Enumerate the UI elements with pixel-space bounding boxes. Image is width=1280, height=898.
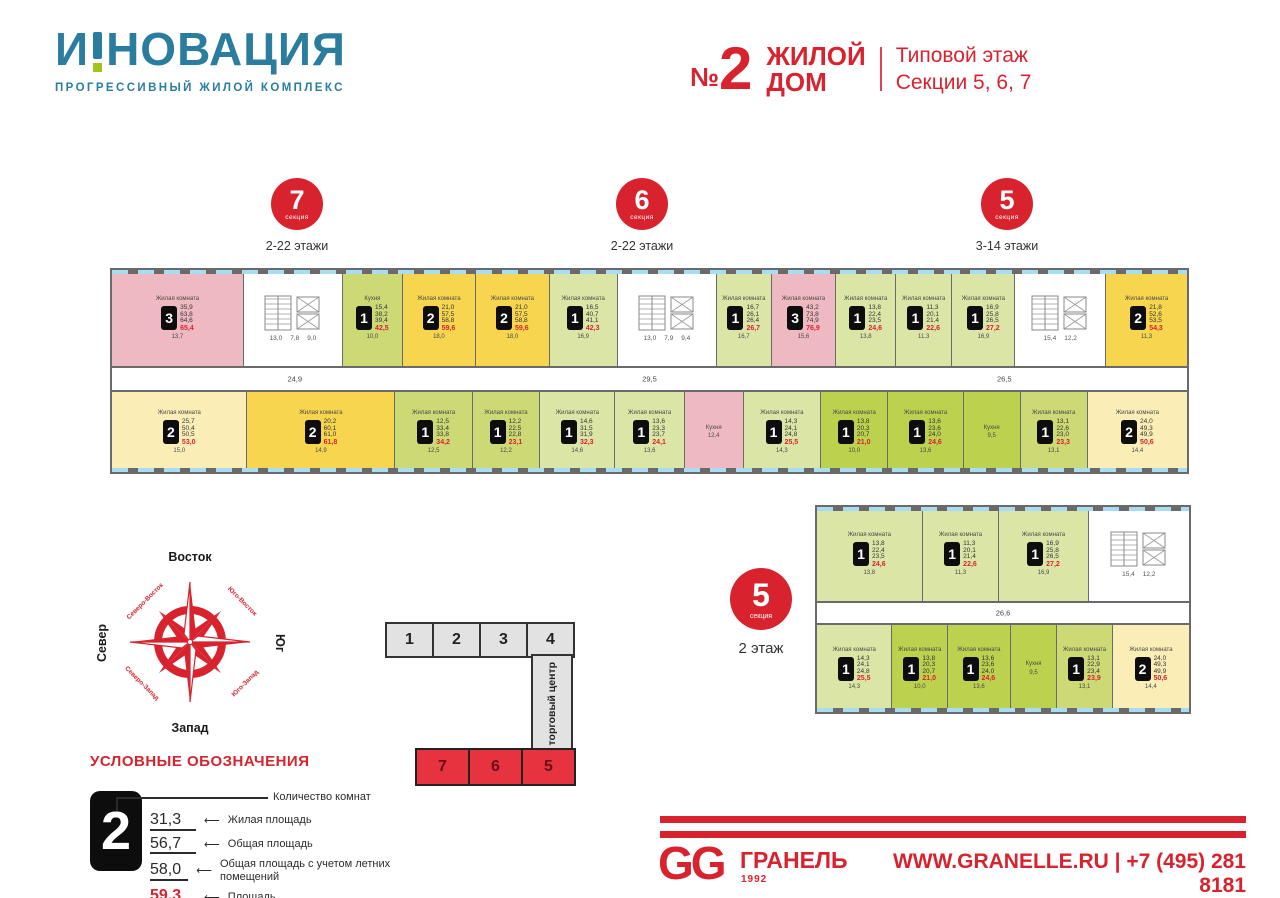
apartment-1-room: Жилая комната113,822,423,524,613,8 (836, 270, 896, 366)
apartment-areas: 25,750,450,553,0 (182, 419, 196, 446)
legend-bracket-line (116, 797, 268, 811)
apartment-total-area: 26,7 (746, 325, 760, 332)
apartment-total-area: 25,5 (785, 439, 799, 446)
plan-corridor: 24,929,526,5 (112, 366, 1187, 392)
apartment-1-room: Жилая комната113,820,320,721,010,0 (892, 625, 948, 712)
apartment-areas: 43,273,874,976,9 (806, 305, 820, 332)
room-dimension: 12,5 (428, 448, 440, 454)
apartment-total-area: 65,4 (180, 325, 194, 332)
room-dimension: 13,1 (1048, 448, 1060, 454)
room-dimension: 16,9 (577, 334, 589, 340)
legend-label: Жилая площадь (228, 814, 312, 827)
apartment-1-room: Жилая комната116,726,126,426,716,7 (717, 270, 772, 366)
apartment-2-room: Жилая комната224,049,349,950,614,4 (1113, 625, 1189, 712)
apartment-total-area: 23,1 (509, 439, 523, 446)
innovation-logo: И НОВАЦИЯ ПРОГРЕССИВНЫЙ ЖИЛОЙ КОМПЛЕКС (55, 26, 346, 94)
apartment-1-room: Жилая комната114,324,124,825,514,3 (744, 392, 822, 472)
room-count-badge: 1 (1068, 657, 1084, 681)
apartment-part: Кухня12,4 (685, 392, 744, 472)
arrow-icon: ⟵ (196, 864, 212, 877)
room-label: Кухня (364, 296, 380, 303)
room-label: Жилая комната (833, 647, 876, 654)
schematic-section-1: 1 (385, 622, 434, 658)
room-dimension: 11,3 (955, 570, 966, 576)
section5-floor2-plan: Жилая комната113,822,423,524,613,8Жилая … (815, 505, 1191, 714)
room-dimension: 16,9 (978, 334, 990, 340)
room-count-badge: 1 (967, 306, 983, 330)
room-count-badge: 2 (1121, 420, 1137, 444)
apartment-1-room: Жилая комната116,540,741,142,316,9 (550, 270, 618, 366)
floor-label: 2 этаж (728, 640, 794, 657)
apartment-part: Кухня9,5 (1011, 625, 1057, 712)
room-label: Жилая комната (556, 410, 599, 417)
room-label: Жилая комната (1032, 410, 1075, 417)
apartment-1-room: Жилая комната113,822,423,524,613,8 (817, 507, 923, 601)
footer-stripe-2 (660, 831, 1246, 838)
apartment-total-area: 34,2 (436, 439, 450, 446)
apartment-total-area: 23,9 (1087, 675, 1101, 682)
apartment-total-area: 24,6 (868, 325, 882, 332)
apartment-total-area: 76,9 (806, 325, 820, 332)
room-dimension: 14,3 (776, 448, 788, 454)
apartment-total-area: 22,6 (926, 325, 940, 332)
room-label: Жилая комната (1022, 532, 1065, 539)
apartment-2-room: Жилая комната221,057,558,859,618,0 (476, 270, 549, 366)
granel-brand: ГРАНЕЛЬ (740, 849, 848, 872)
room-label: Жилая комната (833, 410, 876, 417)
room-count-badge: 1 (849, 306, 865, 330)
room-dimension: 12,2 (500, 448, 512, 454)
corridor-dimension: 24,9 (287, 375, 302, 384)
section-word: секция (750, 613, 772, 620)
apartment-total-area: 42,5 (375, 325, 389, 332)
apartment-areas: 13,122,623,023,3 (1056, 419, 1070, 446)
granel-logo: GG (658, 840, 724, 886)
stairs-elevator-icon (1110, 531, 1168, 567)
apartment-total-area: 50,6 (1154, 675, 1168, 682)
stair-core: 15,412,2 (1089, 507, 1189, 601)
section-number: 5 (752, 579, 770, 611)
apartment-1-room: Жилая комната113,122,623,023,313,1 (1021, 392, 1088, 472)
apartment-total-area: 61,8 (324, 439, 338, 446)
apartment-1-room: Жилая комната113,820,320,721,010,0 (821, 392, 888, 472)
room-label: Жилая комната (898, 647, 941, 654)
room-label: Жилая комната (1125, 296, 1168, 303)
contacts-text: WWW.GRANELLE.RU | +7 (495) 281 8181 (860, 850, 1246, 898)
mall-label: торговый центр (546, 662, 558, 745)
room-label: Жилая комната (156, 296, 199, 303)
windows-strip (817, 507, 1189, 511)
room-dimension: 18,0 (433, 334, 445, 340)
apartment-areas: 35,963,864,665,4 (180, 305, 194, 332)
building-label-2: ДОМ (766, 69, 865, 96)
apartment-total-area: 27,2 (1046, 561, 1060, 568)
schematic-section-4: 4 (526, 622, 575, 658)
section-number: 5 (999, 187, 1014, 214)
section-number: 6 (634, 187, 649, 214)
room-label: Жилая комната (1129, 647, 1172, 654)
apartment-total-area: 53,0 (182, 439, 196, 446)
apartment-areas: 13,623,624,024,6 (982, 656, 996, 683)
apartment-total-area: 32,3 (580, 439, 594, 446)
section-floors: 2-22 этажи (242, 239, 352, 253)
room-label: Жилая комната (412, 410, 455, 417)
logo-text-left: И (55, 26, 89, 72)
arrow-icon: ⟵ (204, 838, 220, 851)
legend-row: 59,3⟵Площадь (150, 887, 410, 898)
room-count-badge: 1 (838, 657, 854, 681)
apartment-total-area: 59,6 (442, 325, 456, 332)
mall-block: торговый центр (531, 654, 573, 754)
room-count-badge: 1 (944, 542, 960, 566)
apartment-areas: 13,822,423,524,6 (868, 305, 882, 332)
compass-north-label: Север (95, 623, 109, 661)
room-count-badge: 1 (1037, 420, 1053, 444)
footer-stripe-1 (660, 816, 1246, 823)
windows-strip (112, 468, 1187, 472)
room-dimension: 13,7 (172, 334, 184, 340)
room-count-badge: 1 (490, 420, 506, 444)
room-dimension: 10,0 (848, 448, 860, 454)
apartment-areas: 12,222,522,823,1 (509, 419, 523, 446)
apartment-areas: 16,925,826,527,2 (986, 305, 1000, 332)
typical-floor-plan: Жилая комната335,963,864,665,413,713,07,… (110, 268, 1189, 474)
apartment-areas: 14,324,124,825,5 (857, 656, 871, 683)
corridor-dimension: 26,6 (996, 609, 1011, 618)
apartment-areas: 16,540,741,142,3 (586, 305, 600, 332)
floor2-top-row: Жилая комната113,822,423,524,613,8Жилая … (817, 507, 1189, 601)
legend-rooms-label: Количество комнат (273, 791, 371, 803)
apartment-1-room: Жилая комната116,925,826,527,216,9 (952, 270, 1015, 366)
room-label: Жилая комната (844, 296, 887, 303)
room-label: Жилая комната (491, 296, 534, 303)
compass-rose: Восток Запад Север Юг Северо-Восток Юго-… (95, 550, 285, 735)
apartment-total-area: 23,3 (1056, 439, 1070, 446)
granel-year: 1992 (741, 874, 767, 885)
apartment-1-room: Жилая комната114,631,531,932,314,6 (540, 392, 615, 472)
room-label: Жилая комната (722, 296, 765, 303)
legend: УСЛОВНЫЕ ОБОЗНАЧЕНИЯ 2 Количество комнат… (90, 753, 410, 770)
legend-rows: 31,3⟵Жилая площадь56,7⟵Общая площадь58,0… (150, 811, 410, 898)
apartment-1-room: Жилая комната111,320,121,422,611,3 (896, 270, 952, 366)
legend-row: 58,0⟵Общая площадь с учетом летних помещ… (150, 858, 410, 883)
stairs-elevator-icon (1031, 295, 1089, 331)
apartment-areas: 14,324,124,825,5 (785, 419, 799, 446)
room-count-badge: 2 (1130, 306, 1146, 330)
room-label: Жилая комната (902, 296, 945, 303)
room-count-badge: 2 (496, 306, 512, 330)
room-label: Жилая комната (299, 410, 342, 417)
section-word: секция (630, 215, 654, 222)
room-label: Жилая комната (628, 410, 671, 417)
apartment-total-area: 54,3 (1149, 325, 1163, 332)
title-divider (880, 47, 882, 91)
room-label: Жилая комната (1116, 410, 1159, 417)
legend-label: Площадь (228, 891, 276, 898)
room-label: Жилая комната (848, 532, 891, 539)
apartment-1-room: Жилая комната113,623,624,024,613,6 (888, 392, 963, 472)
room-label: Кухня (1025, 661, 1041, 668)
apartment-areas: 14,631,531,932,3 (580, 419, 594, 446)
room-dimension: 9,5 (1029, 670, 1037, 676)
room-dimension: 14,3 (848, 684, 860, 690)
apartment-areas: 11,320,121,422,6 (926, 305, 940, 332)
apartment-total-area: 50,6 (1140, 439, 1154, 446)
room-count-badge: 3 (161, 306, 177, 330)
schematic-red-row: 765 (415, 748, 576, 786)
room-count-badge: 1 (853, 542, 869, 566)
stair-core: 13,07,89,0 (244, 270, 343, 366)
room-label: Жилая комната (957, 647, 1000, 654)
stair-core: 15,412,2 (1015, 270, 1106, 366)
apartment-3-room: Жилая комната335,963,864,665,413,7 (112, 270, 244, 366)
legend-value: 31,3 (150, 811, 196, 831)
room-label: Жилая комната (962, 296, 1005, 303)
room-count-badge: 1 (561, 420, 577, 444)
room-count-badge: 1 (356, 306, 372, 330)
floor2-corridor: 26,6 (817, 601, 1189, 625)
schematic-section-3: 3 (479, 622, 528, 658)
legend-value: 59,3 (150, 887, 196, 898)
room-dimension: 9,5 (987, 433, 995, 439)
room-label: Жилая комната (760, 410, 803, 417)
schematic-section-5: 5 (521, 748, 576, 786)
apartment-2-room: Жилая комната220,260,161,061,814,9 (247, 392, 395, 472)
room-dimension: 14,4 (1132, 448, 1144, 454)
apartment-areas: 12,533,433,834,2 (436, 419, 450, 446)
room-dimension: 12,4 (708, 433, 720, 439)
room-count-badge: 1 (766, 420, 782, 444)
room-dimension: 11,3 (1141, 334, 1152, 340)
stair-core: 13,07,99,4 (618, 270, 717, 366)
room-count-badge: 1 (838, 420, 854, 444)
compass-south-label: Юг (273, 633, 287, 651)
schematic-section-2: 2 (432, 622, 481, 658)
room-count-badge: 1 (567, 306, 583, 330)
apartment-areas: 16,726,126,426,7 (746, 305, 760, 332)
apartment-2-room: Жилая комната225,750,450,553,015,0 (112, 392, 247, 472)
apartment-1-room: Жилая комната112,222,522,823,112,2 (473, 392, 540, 472)
apartment-1-room: Жилая комната112,533,433,834,212,5 (395, 392, 473, 472)
room-count-badge: 2 (1135, 657, 1151, 681)
apartment-areas: 21,852,653,554,3 (1149, 305, 1163, 332)
section5-floor2-badge: 5секция 2 этаж (728, 568, 794, 657)
sections-label: Секции 5, 6, 7 (896, 69, 1032, 96)
room-dimension: 14,9 (315, 448, 327, 454)
section-badge-5: 5секция 3-14 этажи (952, 178, 1062, 253)
legend-title: УСЛОВНЫЕ ОБОЗНАЧЕНИЯ (90, 753, 410, 770)
arrow-icon: ⟵ (204, 891, 220, 898)
section-word: секция (285, 215, 309, 222)
schematic-section-7: 7 (415, 748, 470, 786)
apartment-total-area: 24,6 (928, 439, 942, 446)
apartment-total-area: 21,0 (922, 675, 936, 682)
windows-strip (817, 708, 1189, 712)
room-label: Жилая комната (484, 410, 527, 417)
section-badge-6: 6секция 2-22 этажи (587, 178, 697, 253)
apartment-1-room: Кухня115,438,239,442,510,0 (343, 270, 403, 366)
apartment-total-area: 25,5 (857, 675, 871, 682)
compass-east-label: Восток (168, 550, 211, 564)
legend-row: 31,3⟵Жилая площадь (150, 811, 410, 831)
room-label: Кухня (706, 425, 722, 432)
floor-type-label: Типовой этаж (896, 42, 1032, 69)
room-count-badge: 3 (787, 306, 803, 330)
apartment-1-room: Жилая комната114,324,124,825,514,3 (817, 625, 892, 712)
logo-text-right: НОВАЦИЯ (106, 26, 346, 72)
apartment-2-room: Жилая комната221,852,653,554,311,3 (1106, 270, 1187, 366)
building-number: 2 (719, 45, 752, 93)
room-dimension: 13,6 (920, 448, 932, 454)
room-label: Жилая комната (417, 296, 460, 303)
room-count-badge: 1 (907, 306, 923, 330)
apartment-part: Кухня9,5 (964, 392, 1021, 472)
apartment-areas: 13,623,323,724,1 (652, 419, 666, 446)
room-count-badge: 1 (909, 420, 925, 444)
room-dimension: 18,0 (506, 334, 518, 340)
apartment-3-room: Жилая комната343,273,874,976,915,6 (772, 270, 837, 366)
apartment-total-area: 42,3 (586, 325, 600, 332)
room-dimension: 13,1 (1079, 684, 1091, 690)
room-dimension: 15,6 (798, 334, 810, 340)
apartment-areas: 21,057,558,859,6 (515, 305, 529, 332)
room-dimension: 14,6 (571, 448, 583, 454)
building-schematic: 1234 торговый центр 765 (385, 622, 580, 790)
schematic-section-6: 6 (468, 748, 523, 786)
room-count-badge: 2 (305, 420, 321, 444)
section-floors: 3-14 этажи (952, 239, 1062, 253)
room-label: Кухня (984, 425, 1000, 432)
apartment-areas: 13,623,624,024,6 (928, 419, 942, 446)
legend-value: 56,7 (150, 835, 196, 855)
number-sign: № (690, 66, 719, 93)
room-count-badge: 1 (963, 657, 979, 681)
room-count-badge: 1 (417, 420, 433, 444)
apartment-total-area: 21,0 (857, 439, 871, 446)
room-dimension: 15,0 (173, 448, 185, 454)
room-dimension: 13,6 (644, 448, 656, 454)
room-count-badge: 1 (727, 306, 743, 330)
floor2-bottom-row: Жилая комната114,324,124,825,514,3Жилая … (817, 625, 1189, 712)
room-count-badge: 1 (1027, 542, 1043, 566)
apartment-2-room: Жилая комната221,057,558,859,618,0 (403, 270, 476, 366)
apartment-total-area: 27,2 (986, 325, 1000, 332)
apartment-areas: 20,260,161,061,8 (324, 419, 338, 446)
room-label: Жилая комната (939, 532, 982, 539)
apartment-areas: 13,820,320,721,0 (922, 656, 936, 683)
apartment-areas: 11,320,121,422,6 (963, 541, 977, 568)
apartment-2-room: Жилая комната224,049,349,950,614,4 (1088, 392, 1187, 472)
apartment-areas: 24,049,349,950,6 (1140, 419, 1154, 446)
apartment-total-area: 22,6 (963, 561, 977, 568)
room-label: Жилая комната (562, 296, 605, 303)
room-dimension: 13,6 (973, 684, 985, 690)
room-count-badge: 2 (423, 306, 439, 330)
apartment-areas: 24,049,349,950,6 (1154, 656, 1168, 683)
room-count-badge: 2 (163, 420, 179, 444)
room-dimension: 13,8 (863, 570, 875, 576)
plan-bottom-row: Жилая комната225,750,450,553,015,0Жилая … (112, 392, 1187, 472)
apartment-areas: 15,438,239,442,5 (375, 305, 389, 332)
apartment-1-room: Жилая комната113,122,923,423,913,1 (1057, 625, 1113, 712)
corridor-dimension: 26,5 (997, 375, 1012, 384)
section-floors: 2-22 этажи (587, 239, 697, 253)
room-label: Жилая комната (158, 410, 201, 417)
apartment-1-room: Жилая комната113,623,323,724,113,6 (615, 392, 684, 472)
legend-label: Общая площадь с учетом летних помещений (220, 858, 410, 883)
room-count-badge: 1 (633, 420, 649, 444)
stairs-elevator-icon (264, 295, 322, 331)
apartment-areas: 16,925,826,527,2 (1046, 541, 1060, 568)
room-dimension: 10,0 (914, 684, 926, 690)
arrow-icon: ⟵ (204, 814, 220, 827)
room-label: Жилая комната (904, 410, 947, 417)
apartment-total-area: 59,6 (515, 325, 529, 332)
section-number: 7 (289, 187, 304, 214)
windows-strip (112, 270, 1187, 274)
room-dimension: 16,9 (1038, 570, 1050, 576)
apartment-1-room: Жилая комната113,623,624,024,613,6 (948, 625, 1011, 712)
plan-top-row: Жилая комната335,963,864,665,413,713,07,… (112, 270, 1187, 366)
apartment-areas: 21,057,558,859,6 (442, 305, 456, 332)
legend-label: Общая площадь (228, 838, 313, 851)
compass-west-label: Запад (171, 721, 208, 735)
room-dimension: 13,8 (860, 334, 872, 340)
apartment-areas: 13,822,423,524,6 (872, 541, 886, 568)
legend-row: 56,7⟵Общая площадь (150, 835, 410, 855)
apartment-1-room: Жилая комната116,925,826,527,216,9 (999, 507, 1088, 601)
section-badge-7: 7секция 2-22 этажи (242, 178, 352, 253)
poster-page: И НОВАЦИЯ ПРОГРЕССИВНЫЙ ЖИЛОЙ КОМПЛЕКС №… (0, 0, 1280, 898)
schematic-gray-row: 1234 (385, 622, 580, 658)
legend-value: 58,0 (150, 861, 188, 881)
apartment-1-room: Жилая комната111,320,121,422,611,3 (923, 507, 1000, 601)
exclamation-icon (93, 32, 102, 72)
stairs-elevator-icon (638, 295, 696, 331)
room-dimension: 11,3 (918, 334, 929, 340)
logo-tagline: ПРОГРЕССИВНЫЙ ЖИЛОЙ КОМПЛЕКС (55, 82, 346, 94)
apartment-areas: 13,122,923,423,9 (1087, 656, 1101, 683)
room-label: Жилая комната (782, 296, 825, 303)
building-label-1: ЖИЛОЙ (766, 43, 865, 70)
apartment-total-area: 24,6 (982, 675, 996, 682)
room-dimension: 14,4 (1145, 684, 1157, 690)
corridor-dimension: 29,5 (642, 375, 657, 384)
room-dimension: 10,0 (367, 334, 379, 340)
section-word: секция (995, 215, 1019, 222)
compass-star (128, 580, 252, 704)
apartment-total-area: 24,1 (652, 439, 666, 446)
apartment-areas: 13,820,320,721,0 (857, 419, 871, 446)
room-dimension: 16,7 (738, 334, 750, 340)
page-title: № 2 ЖИЛОЙ ДОМ Типовой этаж Секции 5, 6, … (690, 42, 1031, 97)
room-count-badge: 1 (903, 657, 919, 681)
apartment-total-area: 24,6 (872, 561, 886, 568)
room-label: Жилая комната (1063, 647, 1106, 654)
